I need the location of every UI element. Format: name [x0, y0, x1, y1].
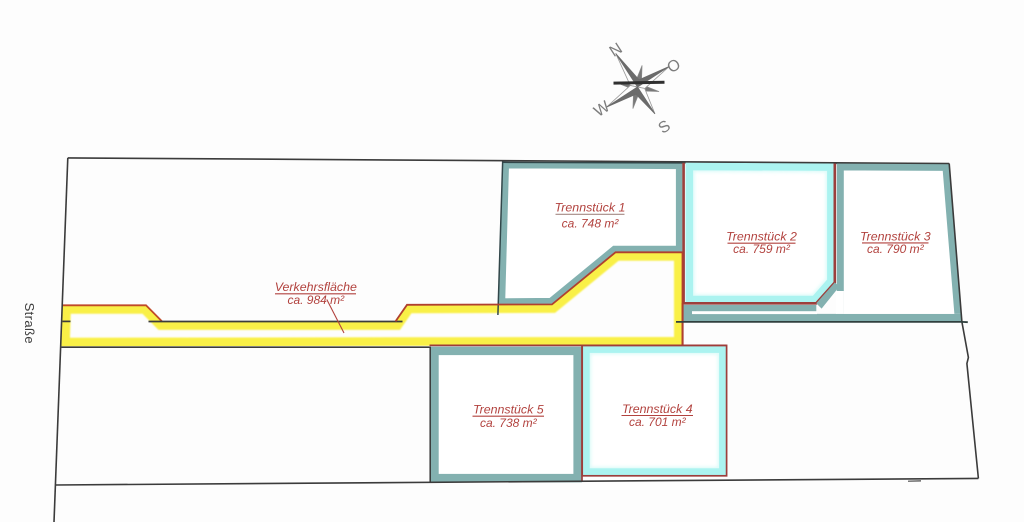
svg-text:Trennstück 1: Trennstück 1: [555, 201, 626, 215]
svg-text:ca. 748 m²: ca. 748 m²: [562, 216, 620, 230]
svg-text:ca. 984 m²: ca. 984 m²: [287, 293, 345, 307]
svg-text:ca. 759 m²: ca. 759 m²: [733, 242, 791, 256]
svg-text:Trennstück 4: Trennstück 4: [622, 402, 693, 416]
svg-text:ca. 701 m²: ca. 701 m²: [629, 415, 687, 429]
svg-text:Straße: Straße: [22, 303, 37, 344]
svg-text:ca. 790 m²: ca. 790 m²: [867, 242, 925, 256]
svg-text:Verkehrsfläche: Verkehrsfläche: [275, 280, 357, 294]
svg-text:ca. 738 m²: ca. 738 m²: [480, 416, 538, 430]
svg-text:Trennstück 5: Trennstück 5: [473, 403, 544, 417]
